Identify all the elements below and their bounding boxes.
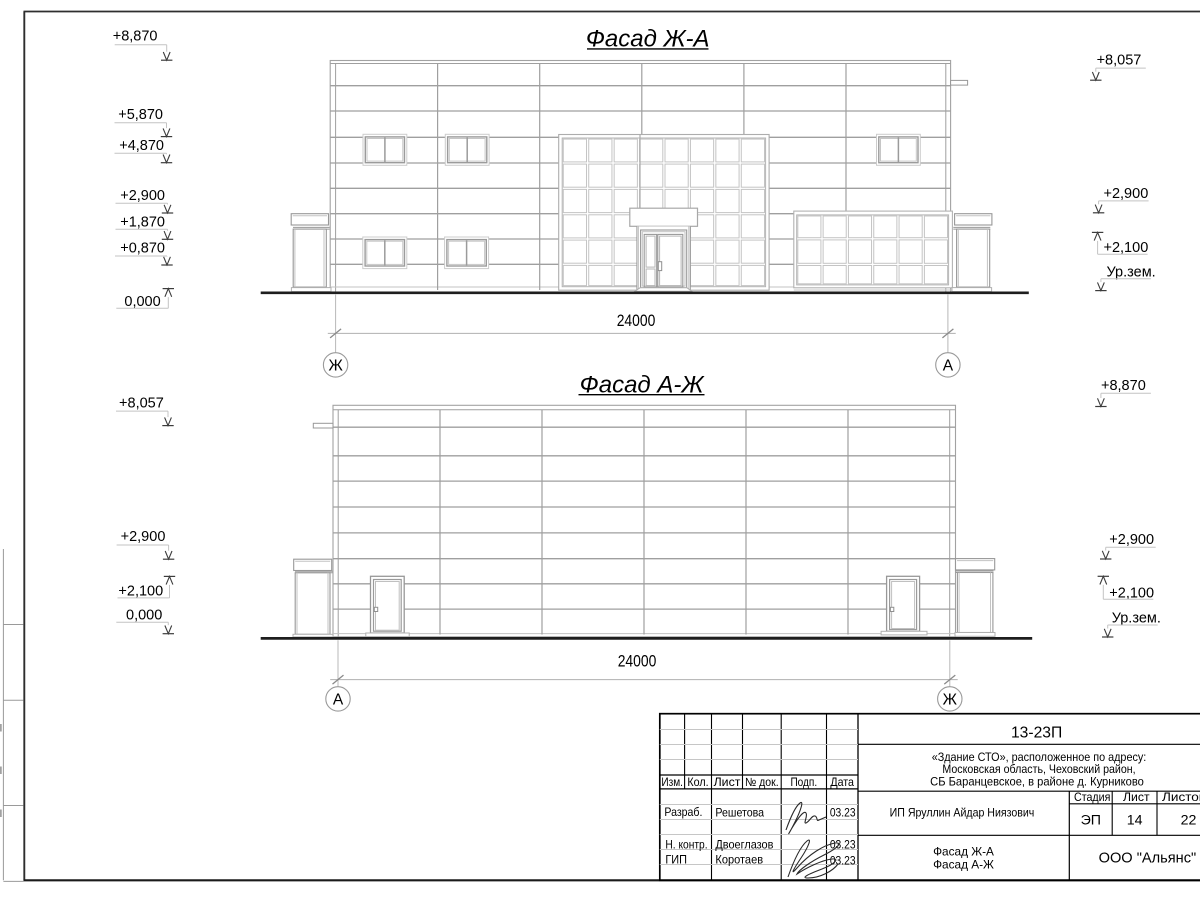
svg-text:Ж: Ж: [943, 692, 958, 709]
svg-text:ГИП: ГИП: [665, 852, 687, 866]
svg-text:+2,900: +2,900: [1109, 532, 1154, 548]
svg-text:Двоеглазов: Двоеглазов: [715, 838, 773, 852]
svg-text:ЭП: ЭП: [1081, 813, 1101, 829]
svg-text:+8,870: +8,870: [113, 29, 158, 45]
svg-text:Стадия: Стадия: [1074, 790, 1110, 804]
svg-text:ООО "Альянс": ООО "Альянс": [1099, 851, 1197, 867]
svg-text:Фасад Ж-А: Фасад Ж-А: [933, 845, 994, 859]
svg-text:0,000: 0,000: [124, 294, 160, 310]
svg-text:+8,870: +8,870: [1101, 378, 1146, 394]
svg-text:+8,057: +8,057: [119, 395, 164, 411]
svg-text:Листов: Листов: [1162, 790, 1200, 804]
svg-text:0,000: 0,000: [126, 608, 162, 624]
svg-text:Фасад А-Ж: Фасад А-Ж: [933, 858, 994, 872]
svg-text:Кол.: Кол.: [687, 775, 708, 789]
svg-text:Лист: Лист: [714, 775, 741, 789]
svg-text:+2,100: +2,100: [118, 584, 163, 600]
svg-text:Ур.зем.: Ур.зем.: [1107, 264, 1156, 280]
svg-text:Дата: Дата: [830, 775, 854, 789]
svg-text:+2,900: +2,900: [1104, 186, 1149, 202]
svg-text:24000: 24000: [618, 653, 657, 671]
svg-text:+4,870: +4,870: [119, 138, 164, 154]
svg-text:СБ Баранцевское, в районе д. К: СБ Баранцевское, в районе д. Курниково: [930, 774, 1144, 788]
svg-text:+5,870: +5,870: [118, 107, 163, 123]
svg-text:+1,870: +1,870: [120, 215, 165, 231]
svg-text:ИП Яруллин Айдар Ниязович: ИП Яруллин Айдар Ниязович: [890, 806, 1035, 820]
svg-text:Ур.зем.: Ур.зем.: [1112, 611, 1161, 627]
svg-text:+2,100: +2,100: [1104, 240, 1149, 256]
svg-text:13-23П: 13-23П: [1011, 725, 1062, 742]
svg-text:Ж: Ж: [328, 358, 343, 375]
svg-text:Лист: Лист: [1123, 790, 1150, 804]
svg-text:Коротаев: Коротаев: [715, 852, 763, 866]
svg-text:03.23: 03.23: [830, 806, 856, 820]
svg-text:+0,870: +0,870: [120, 241, 165, 257]
svg-text:22: 22: [1181, 813, 1197, 829]
svg-text:Н. контр.: Н. контр.: [665, 838, 707, 852]
svg-text:03.23: 03.23: [830, 853, 856, 867]
svg-text:24000: 24000: [617, 312, 656, 330]
svg-text:Изм.: Изм.: [661, 775, 683, 789]
svg-text:+2,900: +2,900: [121, 529, 166, 545]
svg-text:А: А: [333, 692, 344, 709]
svg-text:Разраб.: Разраб.: [664, 805, 702, 819]
svg-text:+2,900: +2,900: [120, 188, 165, 204]
svg-text:№ док.: № док.: [745, 775, 779, 789]
svg-text:+8,057: +8,057: [1097, 53, 1142, 69]
svg-text:А: А: [943, 358, 954, 375]
svg-text:14: 14: [1127, 813, 1143, 829]
svg-text:Решетова: Решетова: [715, 806, 764, 820]
svg-text:Подп.: Подп.: [790, 775, 817, 789]
